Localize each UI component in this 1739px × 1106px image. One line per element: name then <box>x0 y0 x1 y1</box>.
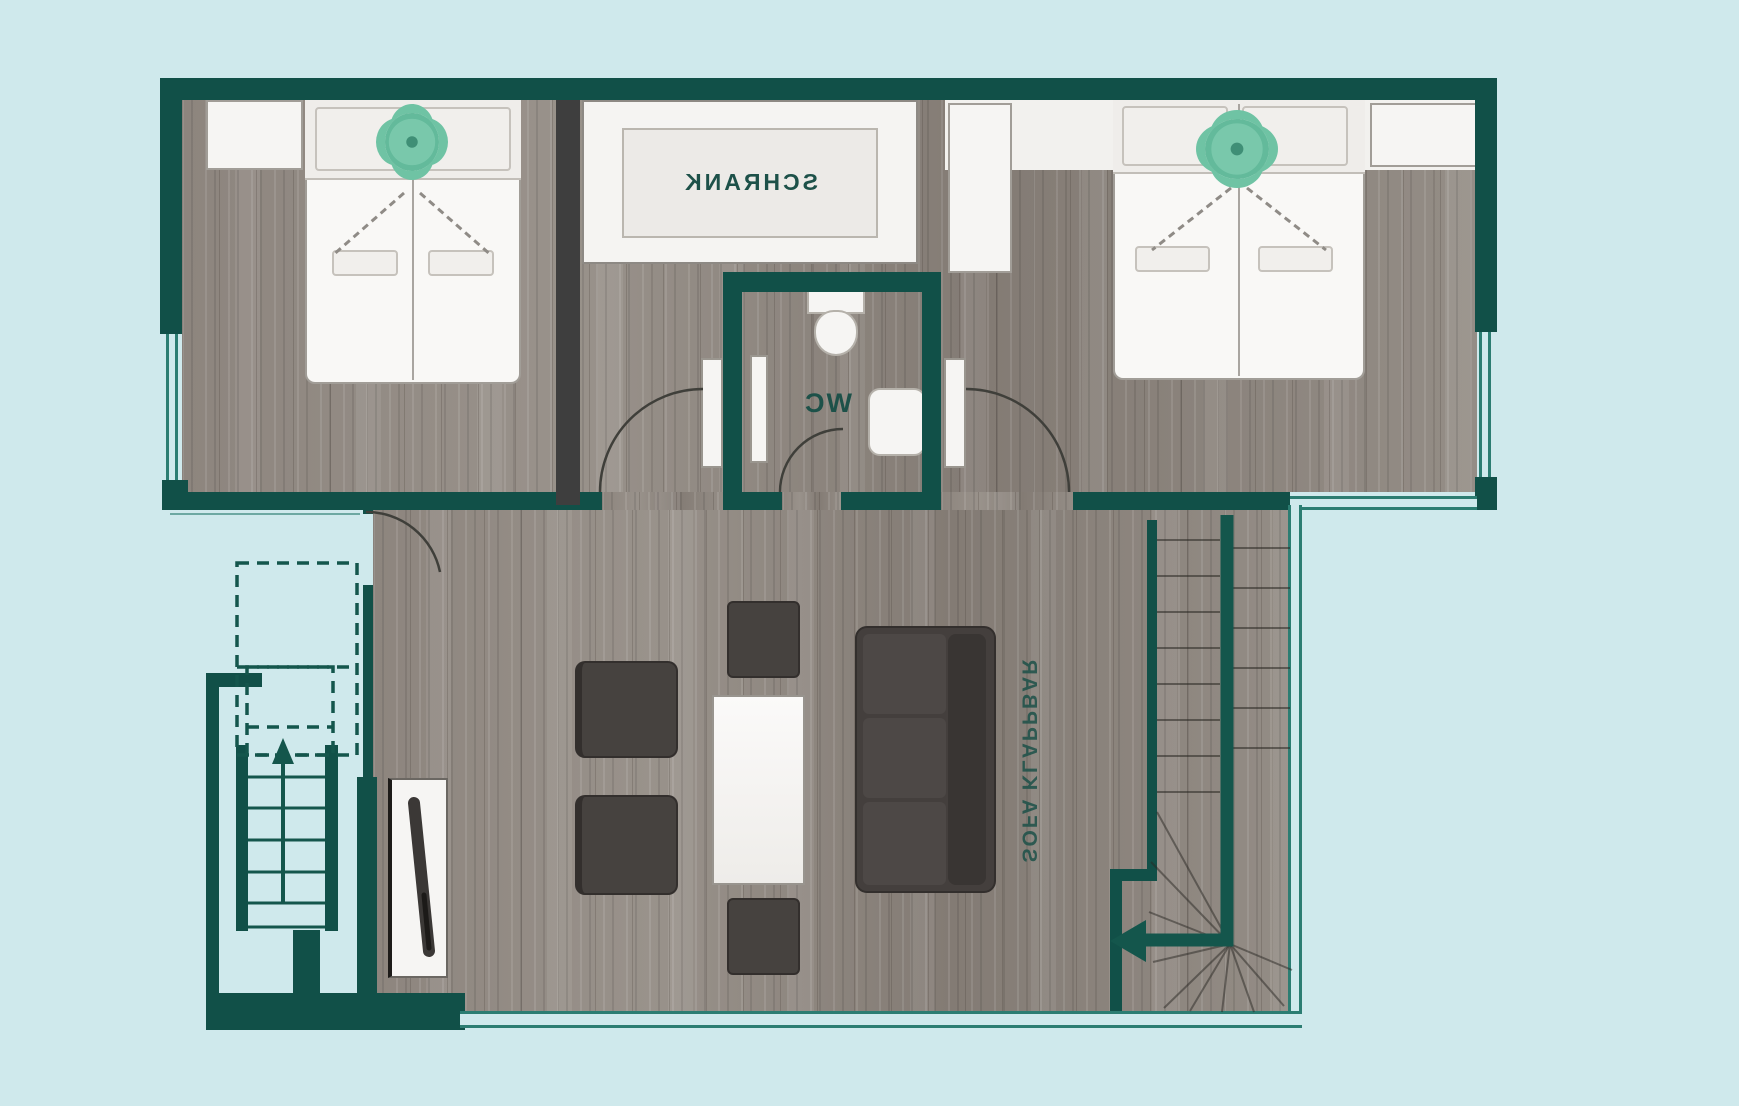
wall-living-left-thin-b <box>363 585 373 777</box>
stair-rail-left <box>236 745 248 931</box>
wall-band-wc-left <box>723 492 782 510</box>
sofa-cushion-3 <box>863 802 946 885</box>
wall-right-corner <box>1475 477 1497 510</box>
door-leaf-bedroom-left <box>701 358 723 468</box>
coffee-table <box>712 695 805 885</box>
plant-icon-right <box>1205 119 1269 179</box>
entry-steps <box>248 777 325 927</box>
armchair-bottom <box>575 795 678 895</box>
wall-divider-dark <box>556 100 580 505</box>
sink-icon <box>868 388 926 456</box>
wall-wc-right <box>922 272 941 492</box>
wall-band-left <box>162 492 602 510</box>
stairwell-wall-jog-v <box>1110 875 1122 1015</box>
wall-right-upper <box>1475 78 1497 332</box>
entry-up-arrow <box>272 738 294 903</box>
stair-rail-right <box>325 745 338 931</box>
wall-top <box>160 78 1497 100</box>
nightstand-right-b <box>1370 103 1477 167</box>
stairwell-wall-left <box>1147 520 1157 877</box>
sofa-cushion-2 <box>863 718 946 798</box>
bed-right-cushion-right <box>1258 246 1333 272</box>
wall-living-left-thin-a <box>363 492 373 514</box>
plant-icon-left <box>385 113 439 171</box>
floor-door-gap-right <box>941 492 1073 510</box>
floor-living-room <box>373 510 1302 1013</box>
door-leaf-wc <box>750 355 768 463</box>
stool-bottom <box>727 898 800 975</box>
window-band-right <box>1290 496 1477 510</box>
sofa-cushion-1 <box>863 634 946 714</box>
bed-left-cushion-right <box>428 250 494 276</box>
wall-wc-left <box>723 272 742 492</box>
wall-entry-stub <box>206 673 262 687</box>
wall-entry-jog <box>293 930 320 1000</box>
window-left <box>166 334 178 480</box>
window-stairwell-right <box>1288 505 1302 1028</box>
nightstand-right-a <box>948 103 1012 273</box>
stool-top <box>727 601 800 678</box>
tv-panel <box>388 778 448 978</box>
wall-living-left-thick <box>357 777 377 1013</box>
wall-entry-left <box>206 673 219 1030</box>
floor-plan: SCHRANK WC SOFA KLAPPBAR <box>0 0 1739 1106</box>
door-leaf-bedroom-right <box>944 358 966 468</box>
window-living-bottom <box>460 1011 1302 1028</box>
bed-left-cushion-left <box>332 250 398 276</box>
armchair-top <box>575 661 678 758</box>
wall-band-wc-right <box>841 492 941 510</box>
nightstand-left <box>206 100 303 170</box>
window-right <box>1479 332 1491 477</box>
closet-inner-panel <box>622 128 878 238</box>
floor-door-gap-wc <box>782 492 841 510</box>
bed-right-cushion-left <box>1135 246 1210 272</box>
floor-door-gap-left <box>602 492 723 510</box>
sofa-back-strip <box>948 634 986 885</box>
dashed-overhead-outline <box>237 563 357 755</box>
wall-left-upper <box>160 78 182 334</box>
wall-wc-top <box>723 272 941 292</box>
wall-band-bedroom-right <box>1073 492 1290 510</box>
wall-entry-bottom <box>206 993 465 1030</box>
toilet-icon-bowl <box>814 310 858 356</box>
